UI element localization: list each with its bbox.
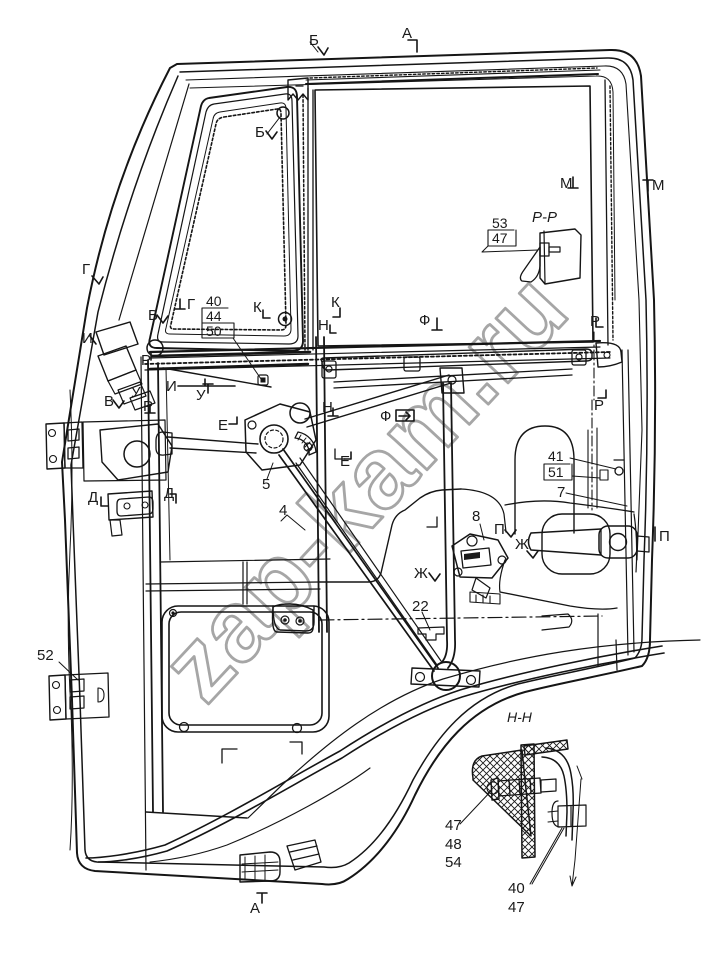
svg-text:Ф: Ф	[380, 408, 391, 425]
svg-text:Г: Г	[82, 261, 90, 278]
svg-text:М: М	[560, 175, 573, 192]
svg-text:И: И	[166, 378, 177, 395]
svg-text:В: В	[104, 393, 114, 410]
svg-text:41: 41	[548, 448, 564, 464]
svg-text:Е: Е	[340, 453, 350, 470]
svg-text:47: 47	[445, 817, 462, 834]
svg-text:53: 53	[492, 215, 508, 231]
svg-text:Д: Д	[88, 489, 98, 506]
svg-text:40: 40	[206, 293, 222, 309]
svg-text:Н-Н: Н-Н	[507, 709, 533, 725]
svg-text:Р: Р	[141, 352, 151, 369]
svg-text:40: 40	[508, 880, 525, 897]
svg-text:5: 5	[262, 476, 270, 493]
svg-text:Г: Г	[187, 296, 195, 313]
svg-text:У: У	[131, 384, 141, 401]
svg-text:К: К	[331, 294, 340, 311]
svg-text:К: К	[253, 299, 262, 316]
svg-text:Е: Е	[218, 417, 228, 434]
svg-text:У: У	[196, 387, 206, 404]
svg-text:54: 54	[445, 854, 462, 871]
svg-text:Н: Н	[318, 317, 329, 334]
svg-text:7: 7	[557, 484, 565, 501]
svg-text:А: А	[250, 900, 260, 917]
svg-text:47: 47	[492, 230, 508, 246]
svg-text:М: М	[652, 177, 665, 194]
svg-text:50: 50	[206, 323, 222, 339]
svg-text:48: 48	[445, 836, 462, 853]
svg-text:П: П	[494, 521, 505, 538]
svg-text:22: 22	[412, 598, 429, 615]
svg-text:8: 8	[472, 508, 480, 525]
svg-text:П: П	[659, 528, 670, 545]
svg-text:51: 51	[548, 464, 564, 480]
svg-text:Ф: Ф	[419, 312, 430, 329]
svg-text:Р-Р: Р-Р	[532, 209, 557, 226]
svg-text:Р: Р	[594, 397, 604, 414]
svg-text:Н: Н	[322, 399, 333, 416]
svg-text:52: 52	[37, 647, 54, 664]
svg-text:Б: Б	[255, 124, 265, 141]
svg-text:47: 47	[508, 899, 525, 916]
svg-text:Ж: Ж	[414, 565, 428, 582]
svg-text:44: 44	[206, 308, 222, 324]
